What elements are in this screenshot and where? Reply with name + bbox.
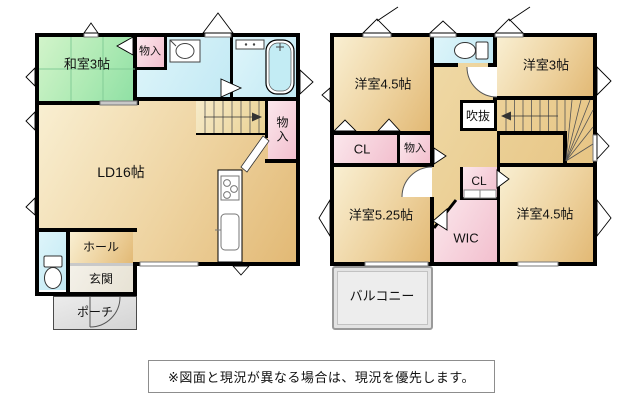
- fixtures-1f: [44, 40, 294, 327]
- label-storage-side-1f: 物入: [276, 116, 288, 144]
- label-balcony: バルコニー: [350, 290, 415, 303]
- storage-door-diagonal: [241, 136, 269, 172]
- label-living-dining: LD16帖: [97, 165, 144, 179]
- label-bedroom-ne: 洋室3帖: [523, 59, 569, 72]
- stairs-2f-icon: [501, 100, 593, 161]
- kitchen-counter-icon: [215, 170, 242, 262]
- label-porch: ポーチ: [77, 306, 113, 318]
- label-void: 吹抜: [466, 110, 490, 122]
- label-entrance: 玄関: [89, 273, 113, 285]
- label-washitsu: 和室3帖: [64, 58, 110, 71]
- toilet-1f-icon: [44, 256, 62, 289]
- label-bedroom-nw: 洋室4.5帖: [354, 78, 411, 91]
- label-closet-left: CL: [354, 143, 371, 156]
- stairs-1f-icon: [204, 101, 262, 133]
- label-wic: WIC: [453, 232, 478, 245]
- bath-counter-icon: [236, 40, 264, 49]
- floor-plan-canvas: 和室3帖 物入 LD16帖 物入 ホール 玄関 ポーチ 洋室4.5帖 洋室3帖 …: [0, 0, 640, 414]
- kitchen-sink-icon: [221, 214, 239, 250]
- label-hall-1f: ホール: [83, 241, 119, 253]
- disclaimer-note: ※図面と現況が異なる場合は、現況を優先します。: [148, 360, 495, 393]
- label-storage-top-1f: 物入: [139, 47, 161, 58]
- toilet-2f-icon: [455, 42, 489, 59]
- label-bedroom-se: 洋室4.5帖: [516, 208, 573, 221]
- label-closet-center: CL: [471, 175, 486, 187]
- walls-1f: [35, 33, 300, 296]
- label-bedroom-sw: 洋室5.25帖: [349, 209, 413, 222]
- washing-machine-icon: [170, 40, 200, 62]
- bathtub-icon: [266, 40, 294, 94]
- label-storage-2f: 物入: [404, 144, 426, 155]
